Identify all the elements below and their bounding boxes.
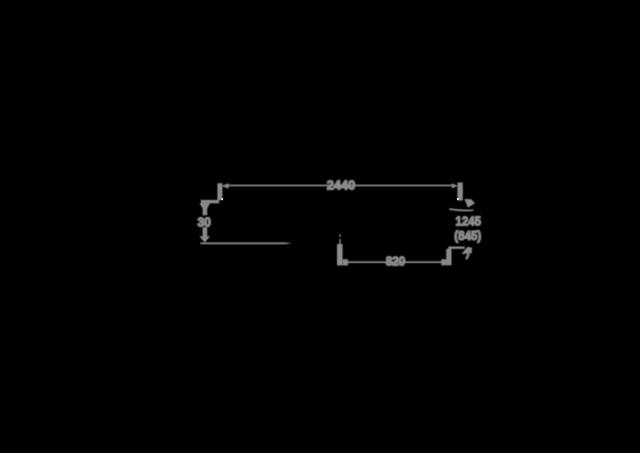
- svg-text:2440: 2440: [327, 178, 356, 193]
- svg-text:820: 820: [386, 254, 406, 269]
- svg-text:1245: 1245: [456, 214, 482, 229]
- svg-text:(845): (845): [454, 228, 481, 243]
